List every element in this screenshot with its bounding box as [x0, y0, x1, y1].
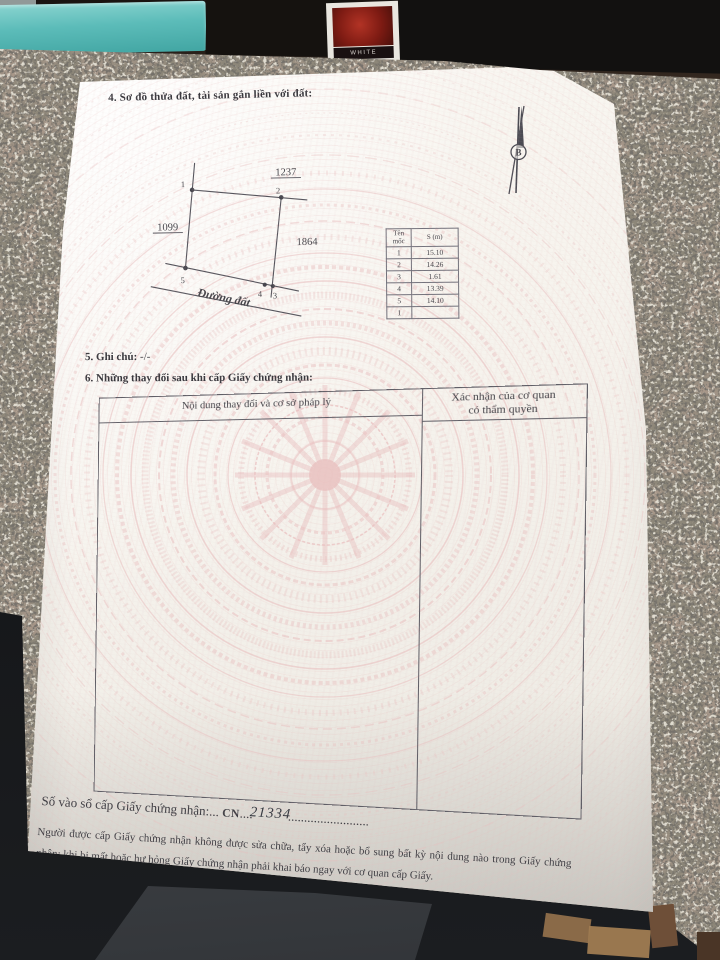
moc-cell: 2	[386, 259, 411, 271]
edge-table-header-s: S (m)	[411, 228, 458, 246]
card-photo	[332, 6, 393, 47]
section5-label: 5. Ghi chú:	[85, 351, 137, 363]
length-cell: 13.39	[412, 282, 459, 294]
vertex-label: 3	[273, 290, 277, 300]
wood-piece	[587, 926, 651, 958]
section5-value: -/-	[140, 351, 150, 363]
length-cell: 15.10	[411, 246, 458, 258]
card-label: WHITE	[334, 46, 394, 60]
adjacent-plot-number: 1237	[275, 167, 296, 178]
wood-piece	[697, 932, 720, 960]
adjacent-plot-number: 1864	[296, 237, 318, 248]
table-row: 413.39	[387, 282, 459, 295]
length-cell: 14.26	[411, 258, 458, 270]
handwritten-number: 21334	[249, 804, 291, 823]
moc-cell: 1	[386, 247, 411, 259]
edge-length-table: Tên mốc S (m) 115.10 214.26 31.61 413.39…	[386, 228, 460, 320]
edge-table-header-moc: Tên mốc	[386, 229, 411, 247]
table-column-divider	[416, 389, 423, 809]
length-cell: 14.10	[412, 294, 459, 306]
table-row: 514.10	[387, 294, 459, 307]
table-row: 1	[387, 306, 459, 319]
moc-cell: 3	[386, 271, 411, 283]
book-entry-code: CN	[222, 807, 240, 820]
changes-col2-header: Xác nhận của cơ quan có thẩm quyền	[422, 388, 587, 419]
vertex-label: 4	[258, 289, 263, 299]
photo-scene: 4. Sơ đồ thửa đất, tài sản gắn liền với …	[0, 0, 720, 960]
changes-col1-header: Nội dung thay đổi và cơ sở pháp lý	[100, 393, 423, 414]
table-header-rule	[99, 415, 421, 424]
moc-cell: 1	[387, 307, 412, 319]
moc-cell: 5	[387, 295, 412, 307]
vertex-label: 1	[181, 179, 185, 189]
teal-box	[0, 1, 207, 55]
adjacent-plot-number: 1099	[157, 222, 178, 233]
table-row: 115.10	[386, 246, 458, 259]
north-label: B	[515, 148, 521, 158]
certificate-page: 4. Sơ đồ thửa đất, tài sản gắn liền với …	[0, 0, 720, 960]
section5-note: 5. Ghi chú: -/-	[85, 351, 150, 363]
vertex-label: 5	[180, 275, 184, 285]
length-cell	[412, 306, 459, 318]
dotted-leader: ...	[209, 804, 220, 820]
parcel-diagram: 1 2 3 4 5 1237 1099 1864 Đường đất	[126, 146, 365, 336]
length-cell: 1.61	[411, 270, 458, 282]
table-row: 31.61	[386, 270, 458, 283]
changes-col2-line2: có thẩm quyền	[422, 401, 587, 419]
table-row: 214.26	[386, 258, 458, 271]
vertex-label: 2	[276, 185, 280, 195]
road-label: Đường đất	[195, 285, 252, 310]
moc-cell: 4	[387, 283, 412, 295]
white-card: WHITE	[326, 1, 400, 64]
north-arrow-icon: B	[492, 100, 548, 200]
changes-table: Nội dung thay đổi và cơ sở pháp lý Xác n…	[94, 383, 588, 819]
section6-title: 6. Những thay đổi sau khi cấp Giấy chứng…	[85, 372, 313, 385]
